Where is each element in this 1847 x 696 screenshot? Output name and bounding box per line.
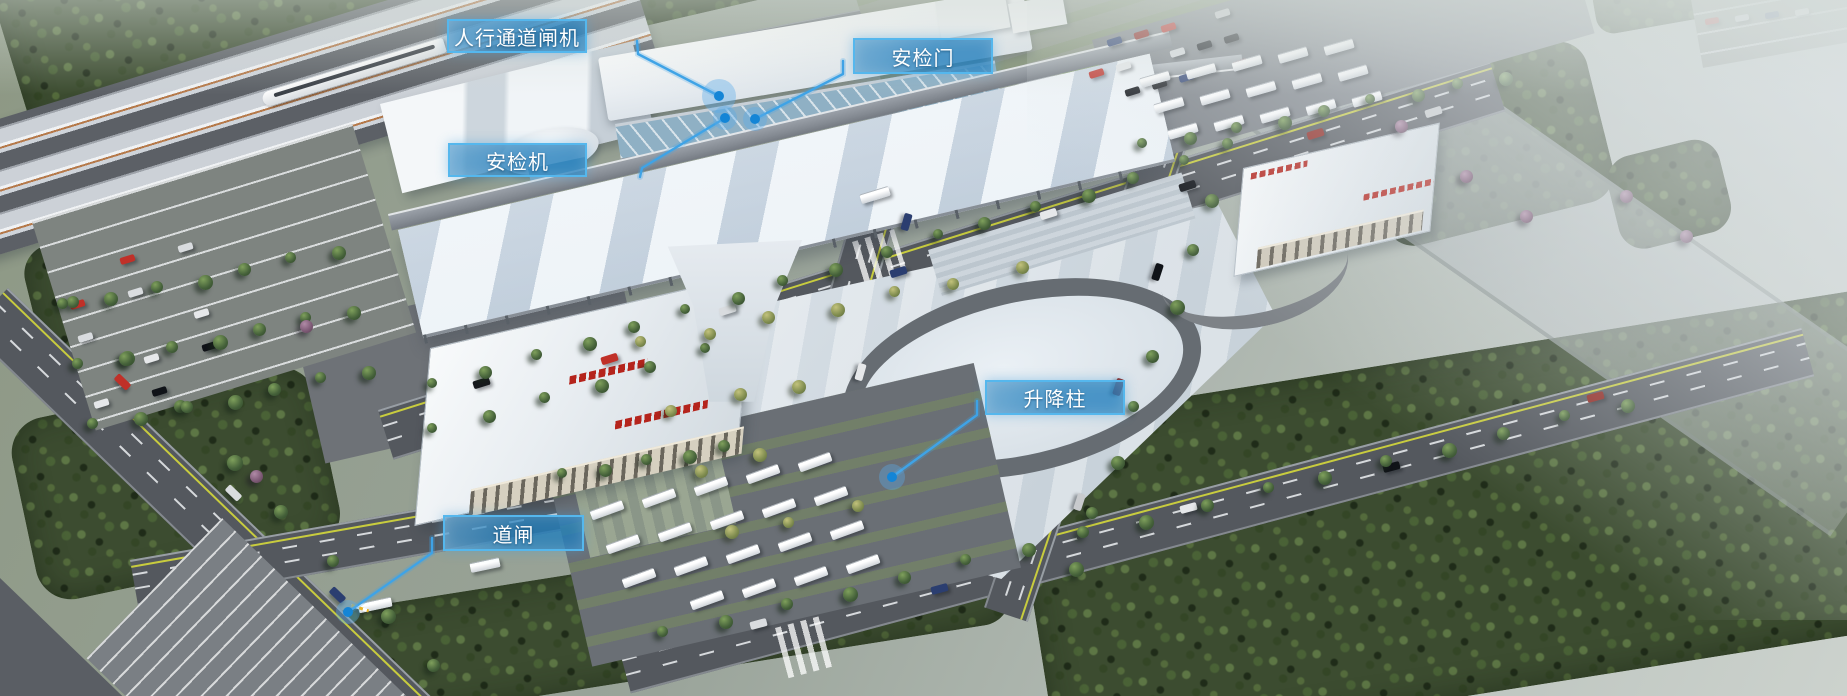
tree — [1680, 230, 1693, 243]
tree — [327, 555, 339, 567]
tree — [347, 306, 361, 320]
tree — [1127, 172, 1139, 184]
tree — [947, 278, 959, 290]
tree — [595, 379, 609, 393]
tree — [657, 626, 668, 637]
tree — [777, 275, 788, 286]
tree — [1016, 261, 1029, 274]
tree — [1263, 482, 1274, 493]
tree — [274, 505, 288, 519]
tree — [644, 361, 656, 373]
tree — [134, 412, 148, 426]
tree — [57, 298, 68, 309]
tree — [1620, 190, 1633, 203]
tree — [119, 352, 133, 366]
tree — [1069, 562, 1084, 577]
tree — [734, 388, 747, 401]
tree — [166, 341, 178, 353]
tree — [227, 455, 243, 471]
tree — [104, 292, 118, 306]
tree — [1146, 350, 1159, 363]
callout-label-lifting-bollard[interactable]: 升降柱 — [985, 380, 1125, 415]
tree — [253, 323, 266, 336]
tree — [1082, 189, 1096, 203]
trees-layer — [0, 0, 1847, 696]
tree — [1380, 455, 1392, 467]
tree — [1318, 105, 1330, 117]
tree — [641, 454, 652, 465]
tree — [704, 328, 716, 340]
tree — [1278, 116, 1292, 130]
tree — [213, 335, 228, 350]
tree — [1205, 194, 1219, 208]
tree — [831, 303, 845, 317]
tree — [228, 395, 243, 410]
callout-label-security-scanner[interactable]: 安检机 — [448, 143, 587, 177]
tree — [599, 464, 612, 477]
tree — [783, 517, 794, 528]
tree — [1111, 456, 1125, 470]
tree — [87, 418, 98, 429]
tree — [1187, 244, 1199, 256]
tree — [725, 525, 739, 539]
tree — [1559, 410, 1570, 421]
tree — [781, 598, 793, 610]
tree — [881, 246, 893, 258]
tree — [843, 587, 858, 602]
tree — [557, 468, 567, 478]
tree — [753, 448, 767, 462]
tree — [1201, 499, 1214, 512]
callout-label-security-door[interactable]: 安检门 — [853, 38, 993, 74]
tree — [732, 292, 745, 305]
tree — [628, 321, 640, 333]
callout-label-barrier-gate[interactable]: 道闸 — [443, 515, 584, 551]
tree — [285, 252, 296, 263]
tree — [665, 405, 677, 417]
tree — [181, 401, 193, 413]
tree — [680, 304, 690, 314]
tree — [427, 659, 440, 672]
tree — [539, 392, 550, 403]
tree — [889, 286, 900, 297]
tree — [1022, 543, 1036, 557]
tree — [700, 343, 710, 353]
tree — [362, 366, 376, 380]
tree — [1318, 471, 1332, 485]
aerial-site-rendering: 人行通道闸机安检门安检机升降柱道闸 — [0, 0, 1847, 696]
tree — [1086, 507, 1098, 519]
tree — [250, 470, 263, 483]
tree — [483, 410, 496, 423]
tree — [583, 337, 597, 351]
tree — [381, 609, 396, 624]
tree — [1365, 94, 1375, 104]
tree — [151, 281, 163, 293]
tree — [1395, 120, 1408, 133]
tree — [315, 372, 326, 383]
tree — [1137, 138, 1147, 148]
tree — [695, 465, 708, 478]
tree — [332, 246, 346, 260]
tree — [1442, 443, 1457, 458]
tree — [198, 275, 213, 290]
tree — [72, 358, 83, 369]
tree — [1412, 89, 1425, 102]
tree — [635, 336, 646, 347]
tree — [898, 571, 911, 584]
tree — [531, 349, 542, 360]
tree — [1030, 201, 1041, 212]
tree — [268, 383, 281, 396]
tree — [1497, 427, 1510, 440]
tree — [1184, 132, 1197, 145]
tree — [1222, 138, 1233, 149]
tree — [1170, 300, 1185, 315]
tree — [238, 263, 251, 276]
tree — [1520, 210, 1533, 223]
tree — [978, 217, 991, 230]
tree — [1621, 399, 1635, 413]
tree — [762, 311, 775, 324]
callout-label-pedestrian-channel-gate[interactable]: 人行通道闸机 — [447, 19, 587, 53]
tree — [1179, 155, 1189, 165]
tree — [719, 615, 733, 629]
tree — [792, 380, 806, 394]
tree — [427, 423, 437, 433]
tree — [67, 296, 79, 308]
tree — [1460, 170, 1473, 183]
tree — [960, 554, 971, 565]
tree — [683, 450, 697, 464]
tree — [1452, 78, 1463, 89]
tree — [933, 229, 943, 239]
tree — [427, 378, 437, 388]
tree — [479, 366, 492, 379]
tree — [1231, 122, 1242, 133]
tree — [829, 263, 843, 277]
tree — [1077, 526, 1089, 538]
tree — [1139, 515, 1154, 530]
tree — [852, 500, 864, 512]
tree — [1128, 401, 1139, 412]
tree — [300, 320, 313, 333]
tree — [718, 440, 730, 452]
tree — [1499, 72, 1513, 86]
